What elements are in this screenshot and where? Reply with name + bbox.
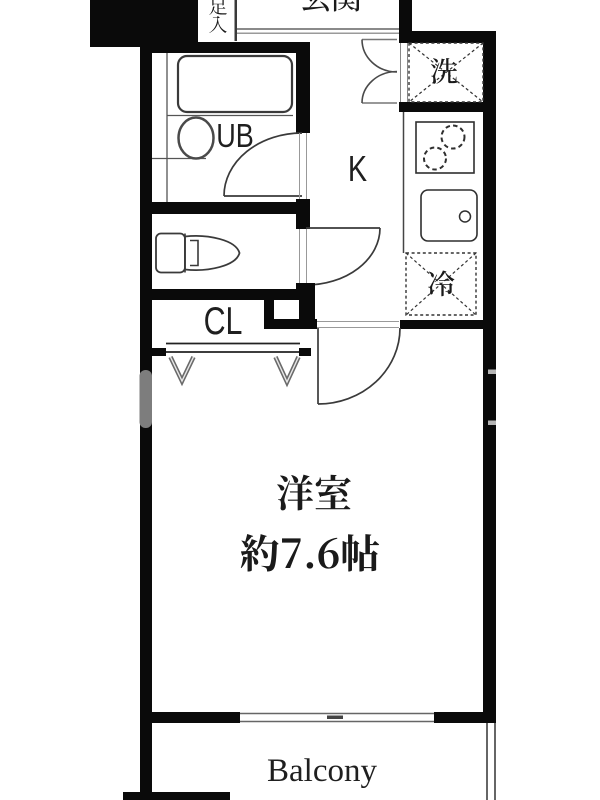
svg-text:UB: UB [216, 119, 254, 155]
svg-text:Balcony: Balcony [267, 753, 377, 789]
svg-text:CL: CL [204, 299, 243, 342]
svg-text:K: K [348, 148, 367, 189]
